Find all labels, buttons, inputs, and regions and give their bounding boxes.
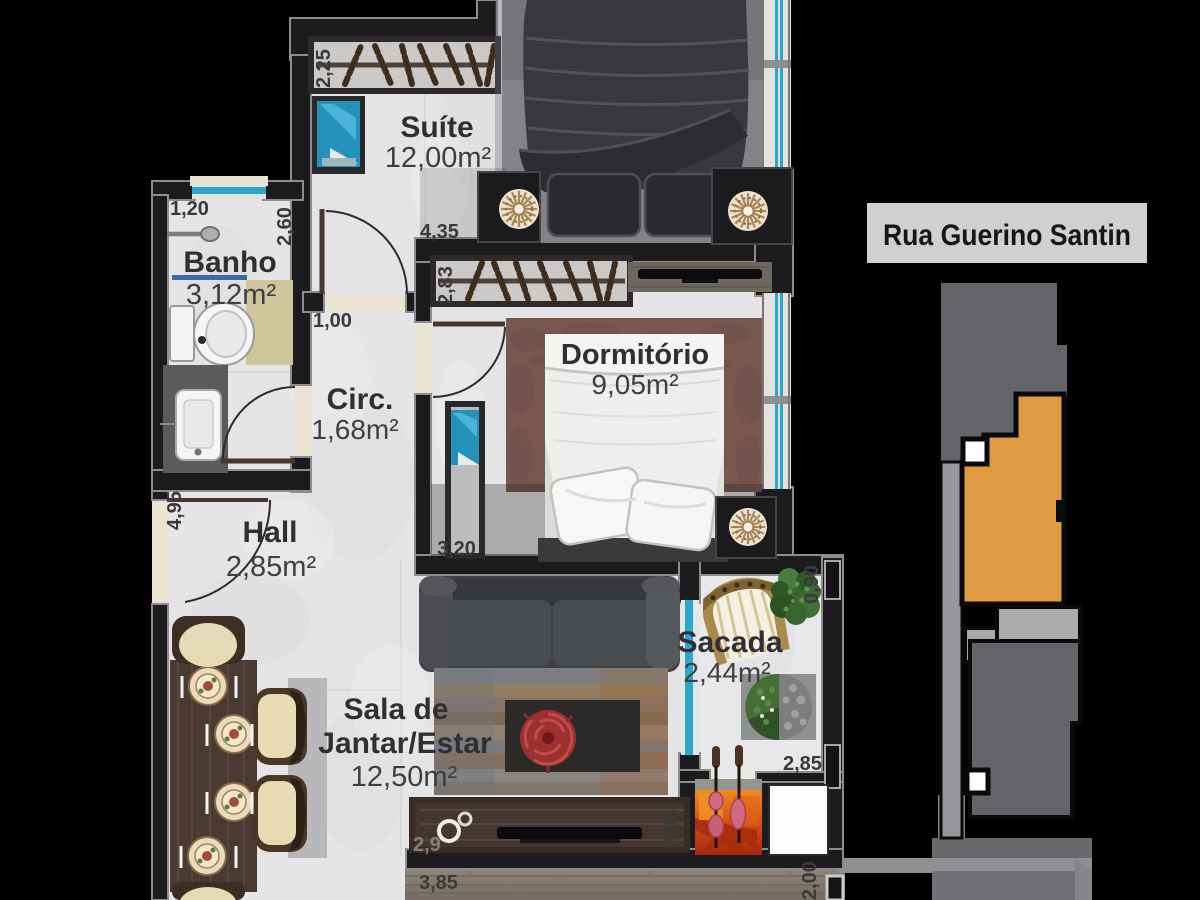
svg-text:0,90: 0,90 bbox=[801, 565, 823, 604]
svg-text:2,9: 2,9 bbox=[413, 834, 441, 856]
svg-text:2,85: 2,85 bbox=[783, 753, 822, 775]
svg-text:2,00: 2,00 bbox=[799, 861, 821, 900]
svg-text:9,05m²: 9,05m² bbox=[591, 369, 678, 400]
svg-text:3,12m²: 3,12m² bbox=[186, 279, 277, 311]
svg-text:Circ.: Circ. bbox=[327, 383, 394, 416]
svg-text:12,50m²: 12,50m² bbox=[351, 761, 458, 793]
svg-text:1,20: 1,20 bbox=[170, 198, 209, 220]
svg-text:Jantar/Estar: Jantar/Estar bbox=[318, 727, 492, 760]
svg-text:2,60: 2,60 bbox=[274, 207, 296, 246]
svg-text:12,00m²: 12,00m² bbox=[385, 142, 492, 174]
svg-text:4,35: 4,35 bbox=[420, 221, 459, 243]
svg-text:3,20: 3,20 bbox=[437, 538, 476, 560]
svg-text:2,85m²: 2,85m² bbox=[226, 551, 317, 583]
svg-text:2,83: 2,83 bbox=[435, 266, 457, 305]
svg-text:Dormitório: Dormitório bbox=[561, 339, 709, 371]
svg-text:Sacada: Sacada bbox=[677, 626, 782, 659]
svg-text:Rua Guerino Santin: Rua Guerino Santin bbox=[883, 219, 1131, 252]
svg-text:2,44m²: 2,44m² bbox=[683, 657, 770, 688]
svg-text:Banho: Banho bbox=[183, 246, 276, 279]
svg-text:Hall: Hall bbox=[242, 516, 297, 549]
svg-text:1,68m²: 1,68m² bbox=[311, 414, 398, 445]
svg-text:Sala de: Sala de bbox=[343, 693, 448, 726]
svg-text:2,25: 2,25 bbox=[313, 49, 335, 88]
svg-text:1,00: 1,00 bbox=[313, 310, 352, 332]
svg-text:2,65: 2,65 bbox=[660, 809, 682, 848]
svg-text:4,95: 4,95 bbox=[164, 491, 186, 530]
svg-text:3,85: 3,85 bbox=[419, 872, 458, 894]
svg-text:Suíte: Suíte bbox=[400, 111, 473, 144]
